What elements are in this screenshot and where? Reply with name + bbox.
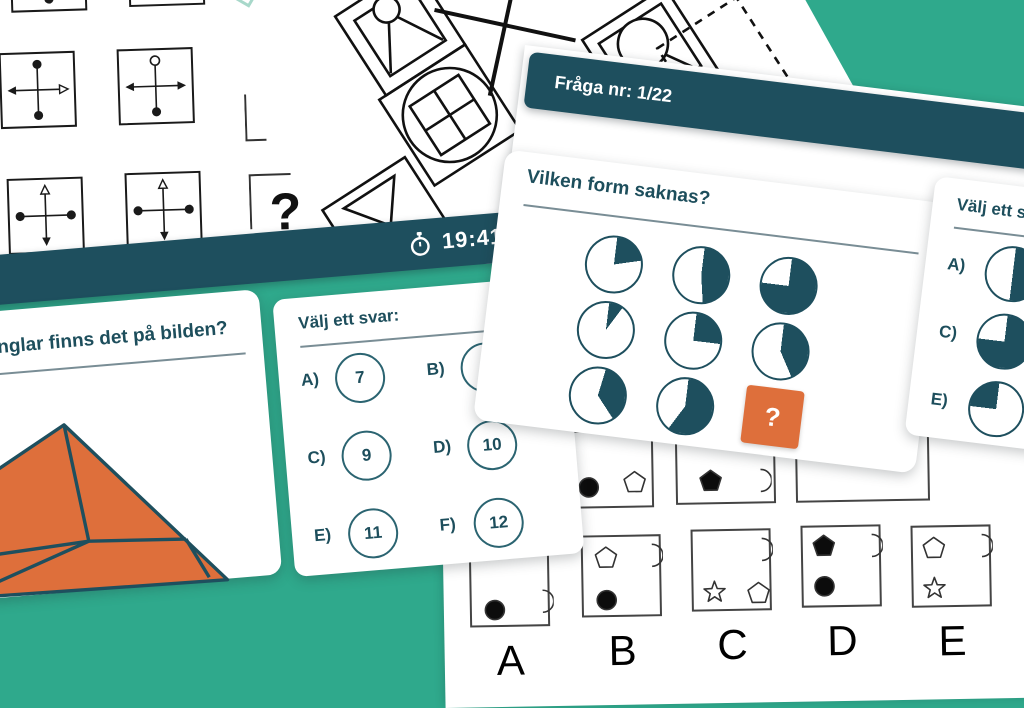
triangle-question-card: nglar finns det på bilden? (0, 289, 282, 605)
answer-option-letter[interactable]: B (582, 626, 663, 675)
puzzle-pie (661, 308, 726, 373)
number-option-circle[interactable]: 7 (333, 351, 387, 405)
collage-background: { "colors": { "background": "#2FA98C", "… (0, 0, 1024, 660)
triangle-figure (0, 397, 243, 611)
question-title: Vilken form saknas? (526, 166, 712, 210)
matrix-cell (7, 177, 85, 255)
answer-option-letter[interactable]: D (802, 616, 883, 665)
answer-panel-title: Välj ett svar: (298, 305, 400, 333)
matrix-cell (117, 47, 195, 125)
answer-option-box[interactable] (800, 524, 881, 607)
circle-shape (811, 573, 837, 599)
pentagon-shape (811, 533, 837, 559)
number-option-circle[interactable]: 9 (340, 429, 394, 483)
answer-panel-title: Välj ett svar: (956, 195, 1024, 227)
number-option-label: B) (426, 359, 446, 380)
puzzle-pie (748, 319, 813, 384)
question-title: nglar finns det på bilden? (0, 318, 229, 359)
title-divider (523, 204, 918, 254)
matrix-cell (9, 0, 87, 13)
crescent-shape (857, 532, 883, 558)
puzzle-pie (574, 298, 639, 363)
pie-option[interactable] (982, 243, 1024, 305)
puzzle-pie (653, 374, 718, 439)
answer-option-letter[interactable]: C (692, 620, 773, 669)
pie-option[interactable] (973, 310, 1024, 372)
puzzle-pie (566, 363, 631, 428)
pie-option-label: C) (938, 322, 958, 344)
pentagon-shape (745, 580, 771, 606)
matrix-cell (127, 0, 205, 7)
puzzle-pie (582, 232, 647, 297)
number-option-label: C) (307, 447, 327, 468)
question-number: Fråga nr: 1/22 (553, 72, 673, 107)
stopwatch-icon (407, 230, 433, 258)
puzzle-pie (756, 254, 821, 319)
pie-option-label: A) (946, 254, 966, 276)
pie-option[interactable] (965, 378, 1024, 440)
number-option-label: F) (439, 514, 457, 535)
number-option-label: D) (432, 437, 452, 458)
answer-option-box[interactable] (910, 524, 991, 607)
answer-option-letter[interactable]: E (912, 616, 993, 665)
number-option-circle[interactable]: 12 (472, 496, 526, 550)
pentagon-shape (921, 535, 947, 561)
number-option-label: E) (313, 525, 332, 546)
shape-question-card: Vilken form saknas? ? (473, 149, 948, 473)
answer-option-letter[interactable]: A (470, 636, 551, 685)
missing-shape-tile: ? (740, 385, 805, 450)
empty-cell-corner-mark (244, 94, 267, 143)
matrix-cell (0, 51, 77, 129)
number-option-label: A) (300, 369, 320, 390)
matrix-cell (124, 171, 202, 249)
diamond-decoration (228, 0, 261, 8)
puzzle-pie (669, 243, 734, 308)
number-option-circle[interactable]: 11 (346, 506, 400, 560)
pie-option-label: E) (930, 389, 949, 411)
crescent-shape (967, 532, 993, 558)
star-shape (921, 575, 947, 601)
crescent-shape (747, 536, 773, 562)
